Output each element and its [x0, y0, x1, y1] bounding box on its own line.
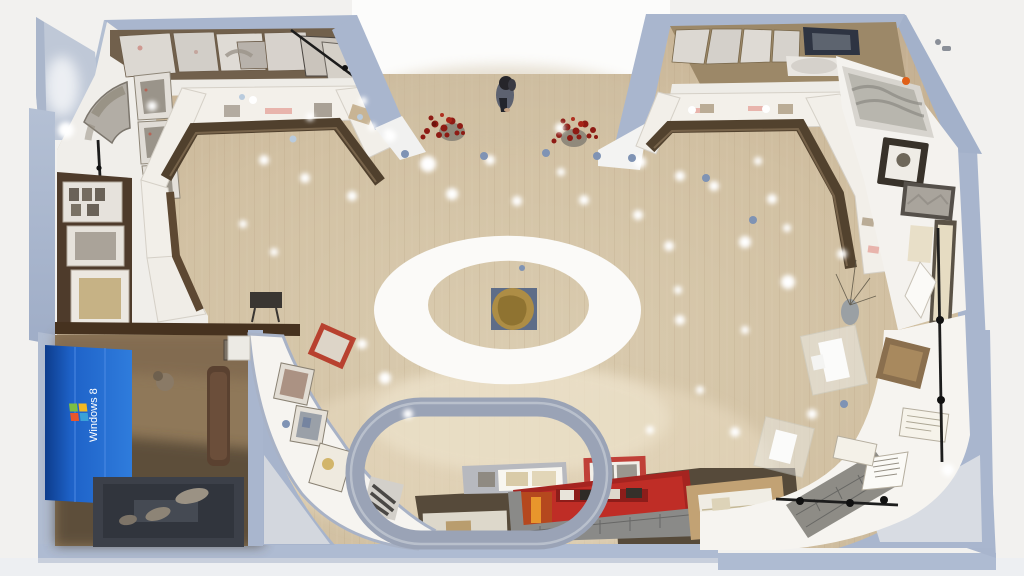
- svg-text:Windows 8: Windows 8: [88, 388, 100, 442]
